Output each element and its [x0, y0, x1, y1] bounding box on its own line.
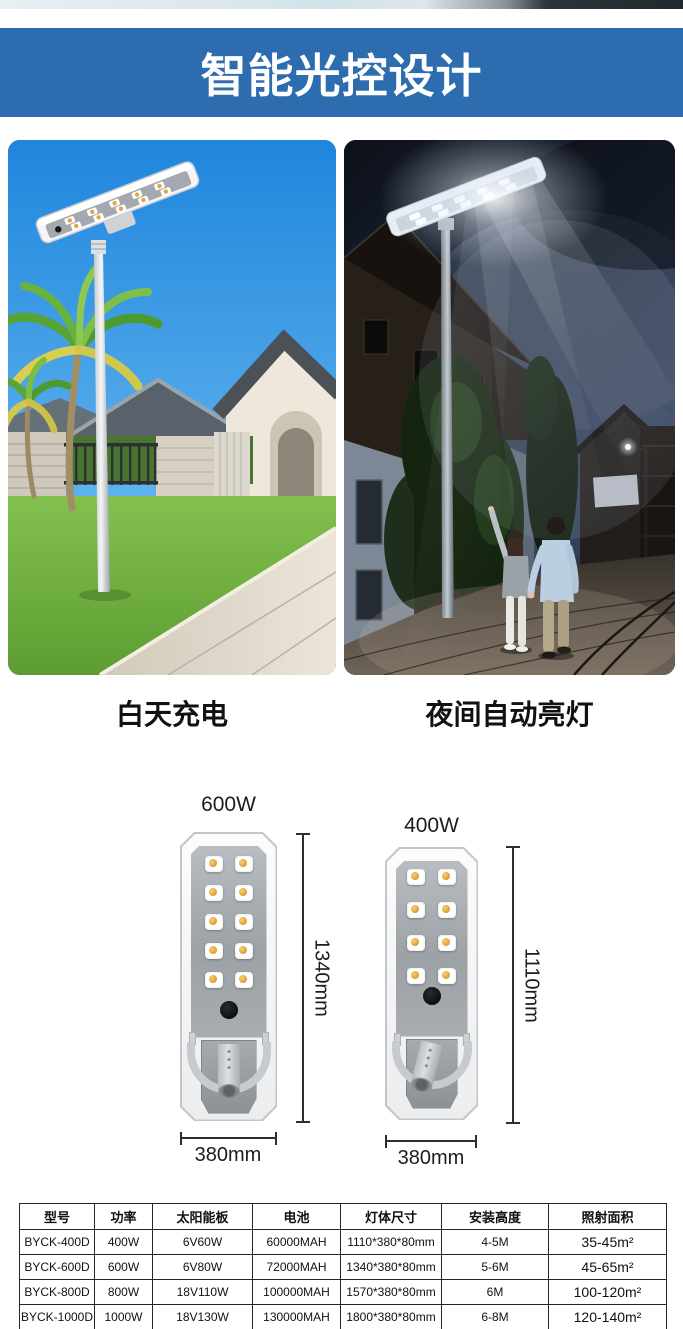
cell-body-size: 1110*380*80mm — [341, 1230, 442, 1255]
cell-body-size: 1800*380*80mm — [341, 1305, 442, 1329]
height-dimension-label-400w: 1110mm — [518, 847, 544, 1123]
cell-install-height: 6-8M — [442, 1305, 549, 1329]
spec-table-body: BYCK-400D 400W 6V60W 60000MAH 1110*380*8… — [20, 1230, 667, 1329]
led-module — [438, 902, 456, 918]
cell-body-size: 1570*380*80mm — [341, 1280, 442, 1305]
cell-solar-panel: 6V60W — [153, 1230, 253, 1255]
led-module — [438, 968, 456, 984]
led-panel — [396, 861, 468, 1037]
spec-table: 型号功率太阳能板电池灯体尺寸安装高度照射面积 BYCK-400D 400W 6V… — [19, 1203, 667, 1329]
light-sensor — [220, 1001, 238, 1019]
cell-battery: 130000MAH — [253, 1305, 341, 1329]
led-module — [235, 914, 253, 930]
led-module — [235, 972, 253, 988]
spec-table-row: BYCK-800D 800W 18V110W 100000MAH 1570*38… — [20, 1280, 667, 1305]
spec-column-header: 型号 — [20, 1204, 95, 1230]
led-panel — [191, 846, 267, 1038]
cell-coverage: 120-140m² — [549, 1305, 667, 1329]
height-dimension-line-400w — [512, 847, 514, 1123]
led-module — [205, 972, 223, 988]
spec-table-row: BYCK-1000D 1000W 18V130W 130000MAH 1800*… — [20, 1305, 667, 1329]
cell-install-height: 4-5M — [442, 1230, 549, 1255]
lamp-diagram-600w — [180, 832, 277, 1121]
cell-coverage: 45-65m² — [549, 1255, 667, 1280]
daytime-scene-illustration — [8, 140, 336, 675]
led-module — [235, 885, 253, 901]
led-module — [438, 935, 456, 951]
cell-power: 1000W — [95, 1305, 153, 1329]
section-banner: 智能光控设计 — [0, 28, 683, 117]
cell-battery: 60000MAH — [253, 1230, 341, 1255]
dimension-diagram-section: 600W 1340mm 380mm 400W — [0, 790, 683, 1190]
cell-model: BYCK-600D — [20, 1255, 95, 1280]
light-sensor — [423, 987, 441, 1005]
caption-night-auto-light: 夜间自动亮灯 — [344, 693, 675, 733]
spec-column-header: 功率 — [95, 1204, 153, 1230]
spec-column-header: 电池 — [253, 1204, 341, 1230]
nighttime-photo — [344, 140, 675, 675]
lamp-body — [387, 849, 477, 1119]
spec-column-header: 太阳能板 — [153, 1204, 253, 1230]
caption-daytime-charging: 白天充电 — [8, 693, 336, 733]
cell-solar-panel: 18V110W — [153, 1280, 253, 1305]
led-module — [407, 968, 425, 984]
led-module — [407, 935, 425, 951]
cell-coverage: 100-120m² — [549, 1280, 667, 1305]
width-dimension-line-600w — [181, 1137, 276, 1139]
cell-power: 800W — [95, 1280, 153, 1305]
width-dimension-line-400w — [386, 1140, 476, 1142]
spec-table-row: BYCK-400D 400W 6V60W 60000MAH 1110*380*8… — [20, 1230, 667, 1255]
led-module — [205, 885, 223, 901]
led-module — [205, 943, 223, 959]
height-dimension-label-600w: 1340mm — [308, 834, 334, 1122]
led-module — [438, 869, 456, 885]
cell-solar-panel: 18V130W — [153, 1305, 253, 1329]
led-grid — [191, 846, 267, 988]
cell-model: BYCK-1000D — [20, 1305, 95, 1329]
cell-model: BYCK-400D — [20, 1230, 95, 1255]
spec-column-header: 安装高度 — [442, 1204, 549, 1230]
power-label-600w: 600W — [180, 793, 277, 817]
pole-mount-cylinder — [218, 1044, 240, 1094]
spec-column-header: 照射面积 — [549, 1204, 667, 1230]
led-module — [407, 869, 425, 885]
spec-table-header-row: 型号功率太阳能板电池灯体尺寸安装高度照射面积 — [20, 1204, 667, 1230]
previous-section-remnant-strip — [0, 0, 683, 9]
led-module — [205, 914, 223, 930]
led-module — [205, 856, 223, 872]
cell-power: 600W — [95, 1255, 153, 1280]
led-grid — [396, 861, 468, 984]
width-dimension-label-400w: 380mm — [355, 1147, 507, 1170]
height-dimension-line-600w — [302, 834, 304, 1122]
led-module — [235, 856, 253, 872]
lamp-diagram-400w — [385, 847, 478, 1120]
lamp-body — [182, 834, 276, 1120]
cell-model: BYCK-800D — [20, 1280, 95, 1305]
led-module — [407, 902, 425, 918]
spec-column-header: 灯体尺寸 — [341, 1204, 442, 1230]
cell-battery: 72000MAH — [253, 1255, 341, 1280]
cell-solar-panel: 6V80W — [153, 1255, 253, 1280]
cell-body-size: 1340*380*80mm — [341, 1255, 442, 1280]
cell-coverage: 35-45m² — [549, 1230, 667, 1255]
night-scene-illustration — [344, 140, 675, 675]
spec-table-row: BYCK-600D 600W 6V80W 72000MAH 1340*380*8… — [20, 1255, 667, 1280]
cell-install-height: 6M — [442, 1280, 549, 1305]
power-label-400w: 400W — [385, 814, 478, 838]
product-detail-page: 智能光控设计 — [0, 0, 683, 1329]
section-title: 智能光控设计 — [201, 40, 483, 106]
cell-install-height: 5-6M — [442, 1255, 549, 1280]
led-module — [235, 943, 253, 959]
width-dimension-label-600w: 380mm — [150, 1144, 306, 1167]
cell-battery: 100000MAH — [253, 1280, 341, 1305]
daytime-photo — [8, 140, 336, 675]
cell-power: 400W — [95, 1230, 153, 1255]
